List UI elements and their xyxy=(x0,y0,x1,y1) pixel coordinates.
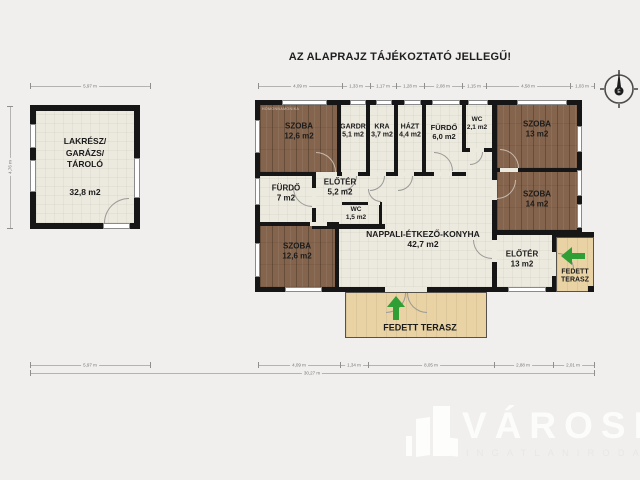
dim-main-top-2: 1,17 m xyxy=(374,84,392,89)
dim-tick xyxy=(396,83,397,89)
window xyxy=(577,126,582,152)
wall xyxy=(366,105,370,172)
room-label-furdo7: FÜRDŐ 7 m2 xyxy=(272,183,300,202)
dim-garage-bottom: 5,97 m xyxy=(81,363,99,368)
dim-bottom-1: 1,34 m xyxy=(345,363,363,368)
dim-tick xyxy=(424,83,425,89)
agency-logo-subtitle: INGATLANIRODA xyxy=(466,448,640,459)
door-opening xyxy=(316,172,337,176)
dim-tick xyxy=(342,83,343,89)
dim-tick xyxy=(150,362,151,368)
dim-bottom-4: 2,01 m xyxy=(564,363,582,368)
garage-window-right xyxy=(134,158,140,198)
dim-main-top-6: 4,58 m xyxy=(519,84,537,89)
room-name: KRA xyxy=(371,124,393,132)
door-opening xyxy=(492,240,497,262)
dim-tick xyxy=(494,362,495,368)
dim-garage-left: 4,76 m xyxy=(8,158,13,176)
garage-name-line2: GARÁZS/ xyxy=(36,148,134,160)
dim-bottom-2: 8,05 m xyxy=(422,363,440,368)
room-area: 1,5 m2 xyxy=(346,214,366,222)
room-name: WC xyxy=(346,206,366,214)
room-name: ELŐTÉR xyxy=(324,177,356,187)
dim-bottom-0: 4,09 m xyxy=(290,363,308,368)
garage-area: 32,8 m2 xyxy=(69,187,100,197)
room-label-szoba1: SZOBA 12,6 m2 xyxy=(284,121,313,140)
room-name: ELŐTÉR xyxy=(506,249,538,259)
room-label-szoba14: SZOBA 14 m2 xyxy=(523,189,551,208)
room-name: SZOBA xyxy=(284,121,313,131)
dim-tick xyxy=(594,83,595,89)
floor-plan: AZ ALAPRAJZ TÁJÉKOZTATÓ JELLEGŰ! É 5,97 … xyxy=(0,0,640,480)
room-label-kra: KRA 3,7 m2 xyxy=(371,124,393,141)
room-area: 12,6 m2 xyxy=(284,131,313,141)
agency-logo-brand: VÁROSI xyxy=(462,405,640,447)
window xyxy=(517,100,567,105)
dim-tick xyxy=(258,83,259,89)
wall xyxy=(422,105,426,172)
room-area: 4,4 m2 xyxy=(399,132,421,140)
entrance-arrow-left xyxy=(561,247,585,265)
dim-garage-top: 5,97 m xyxy=(81,84,99,89)
compass-icon: É xyxy=(596,64,640,110)
dim-tick xyxy=(340,362,341,368)
room-area: 13 m2 xyxy=(506,259,538,269)
room-area: 14 m2 xyxy=(523,199,551,209)
entrance-arrow-up xyxy=(387,296,405,320)
room-name: NAPPALI-ÉTKEZŐ-KONYHA xyxy=(366,229,480,239)
wall xyxy=(462,105,466,152)
door-opening xyxy=(310,222,327,226)
dim-tick xyxy=(594,362,595,368)
room-area: 13 m2 xyxy=(523,129,551,139)
dim-tick xyxy=(570,83,571,89)
room-label-wc2: WC 1,5 m2 xyxy=(346,206,366,222)
room-area: 42,7 m2 xyxy=(366,239,480,249)
dim-tick xyxy=(30,83,31,89)
room-area: 7 m2 xyxy=(272,193,300,203)
window xyxy=(468,100,488,105)
dim-tick xyxy=(594,370,595,376)
room-label-eloter1: ELŐTÉR 5,2 m2 xyxy=(324,177,356,196)
window xyxy=(577,204,582,228)
room-name: GARDR xyxy=(340,124,366,132)
room-label-hazt: HÁZT 4,4 m2 xyxy=(399,124,421,141)
window xyxy=(432,100,460,105)
room-area: 2,1 m2 xyxy=(467,124,487,132)
window xyxy=(508,287,546,292)
dim-tick xyxy=(258,362,259,368)
agency-logo-icon xyxy=(400,400,458,470)
dim-total: 30,27 m xyxy=(302,371,322,376)
window xyxy=(282,100,327,105)
terrace-corner-post xyxy=(588,286,594,292)
room-label-gardrob: GARDR 5,1 m2 xyxy=(340,124,366,141)
dim-tick xyxy=(486,83,487,89)
door-opening xyxy=(500,168,518,172)
room-area: 3,7 m2 xyxy=(371,132,393,140)
window xyxy=(350,100,366,105)
window xyxy=(577,170,582,196)
garage-name-line3: TÁROLÓ xyxy=(36,159,134,171)
dim-bottom-3: 2,88 m xyxy=(514,363,532,368)
dim-main-top-0: 4,09 m xyxy=(291,84,309,89)
dim-tick xyxy=(150,83,151,89)
room-label-wc1: WC 2,1 m2 xyxy=(467,116,487,132)
dim-tick xyxy=(368,362,369,368)
room-name: SZOBA xyxy=(523,119,551,129)
dim-tick xyxy=(30,362,31,368)
page-title: AZ ALAPRAJZ TÁJÉKOZTATÓ JELLEGŰ! xyxy=(240,51,560,63)
room-label-terasz-bottom: FEDETT TERASZ xyxy=(383,323,457,334)
door-opening xyxy=(368,202,380,205)
window xyxy=(255,243,260,277)
room-name: SZOBA xyxy=(523,189,551,199)
room-label-szoba13: SZOBA 13 m2 xyxy=(523,119,551,138)
agency-logo: VÁROSI INGATLANIRODA xyxy=(400,400,630,470)
room-label-szoba4: SZOBA 12,6 m2 xyxy=(282,241,311,260)
french-door-opening xyxy=(385,287,427,292)
room-area: 12,6 m2 xyxy=(282,251,311,261)
dim-tick xyxy=(7,106,13,107)
wall xyxy=(379,202,382,227)
dim-main-top-4: 2,08 m xyxy=(434,84,452,89)
window xyxy=(255,120,260,153)
room-area: 6,0 m2 xyxy=(431,132,458,141)
door-opening xyxy=(312,188,316,208)
photographer-watermark: HOMONNAMONIKA xyxy=(262,107,299,111)
room-name: FÜRDŐ xyxy=(272,183,300,193)
window xyxy=(285,287,322,292)
room-name: SZOBA xyxy=(282,241,311,251)
room-name: HÁZT xyxy=(399,124,421,132)
room-label-nappali: NAPPALI-ÉTKEZŐ-KONYHA 42,7 m2 xyxy=(366,229,480,249)
dim-main-top-3: 1,28 m xyxy=(401,84,419,89)
dim-main-top-7: 1,03 m xyxy=(573,84,591,89)
dim-main-top-5: 1,15 m xyxy=(465,84,483,89)
door-opening xyxy=(434,172,452,176)
room-area: 5,1 m2 xyxy=(340,132,366,140)
garage-door-opening xyxy=(103,223,130,229)
window xyxy=(376,100,392,105)
room-name: FÜRDŐ xyxy=(431,123,458,132)
window xyxy=(404,100,421,105)
window xyxy=(255,178,260,205)
room-area: 5,2 m2 xyxy=(324,187,356,197)
room-label-eloter13: ELŐTÉR 13 m2 xyxy=(506,249,538,268)
dim-tick xyxy=(553,362,554,368)
wall xyxy=(394,105,398,172)
dim-main-top-1: 1,33 m xyxy=(347,84,365,89)
dim-tick xyxy=(30,370,31,376)
wall xyxy=(335,226,339,292)
garage-label: LAKRÉSZ/ GARÁZS/ TÁROLÓ xyxy=(36,136,134,171)
room-label-terasz-right: FEDETT TERASZ xyxy=(558,269,592,286)
garage-name-line1: LAKRÉSZ/ xyxy=(36,136,134,148)
dim-tick xyxy=(462,83,463,89)
room-name: WC xyxy=(467,116,487,124)
dim-tick xyxy=(370,83,371,89)
dim-tick xyxy=(7,228,13,229)
room-label-furdo6: FÜRDŐ 6,0 m2 xyxy=(431,123,458,141)
